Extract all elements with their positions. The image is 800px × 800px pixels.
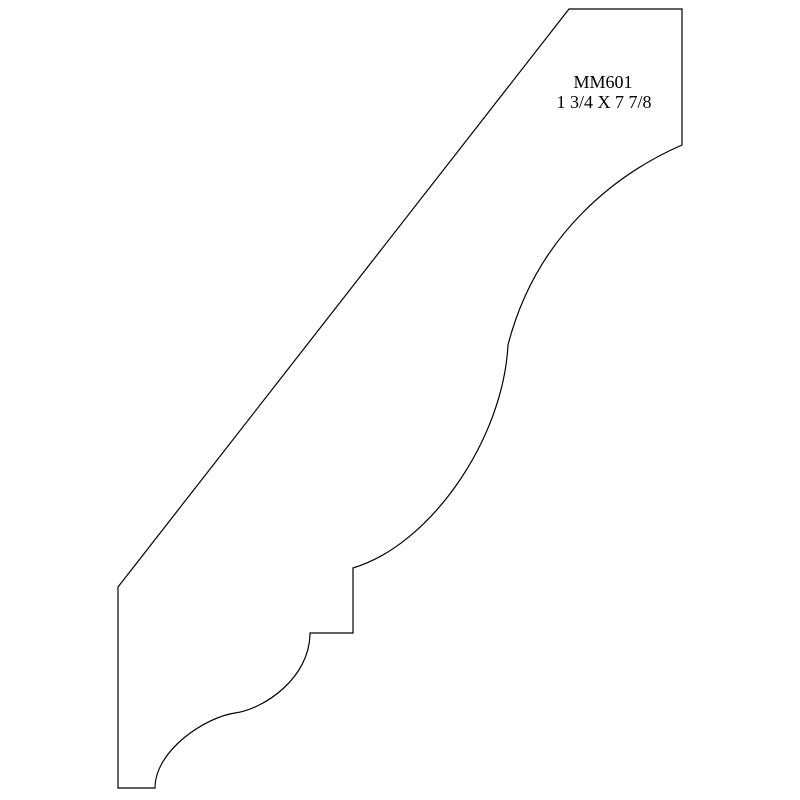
profile-drawing-svg: MM601 1 3/4 X 7 7/8: [0, 0, 800, 800]
part-number-label: MM601: [573, 72, 632, 92]
part-dimensions-label: 1 3/4 X 7 7/8: [556, 92, 651, 112]
molding-profile-diagram: MM601 1 3/4 X 7 7/8: [0, 0, 800, 800]
crown-molding-outline: [118, 9, 682, 788]
